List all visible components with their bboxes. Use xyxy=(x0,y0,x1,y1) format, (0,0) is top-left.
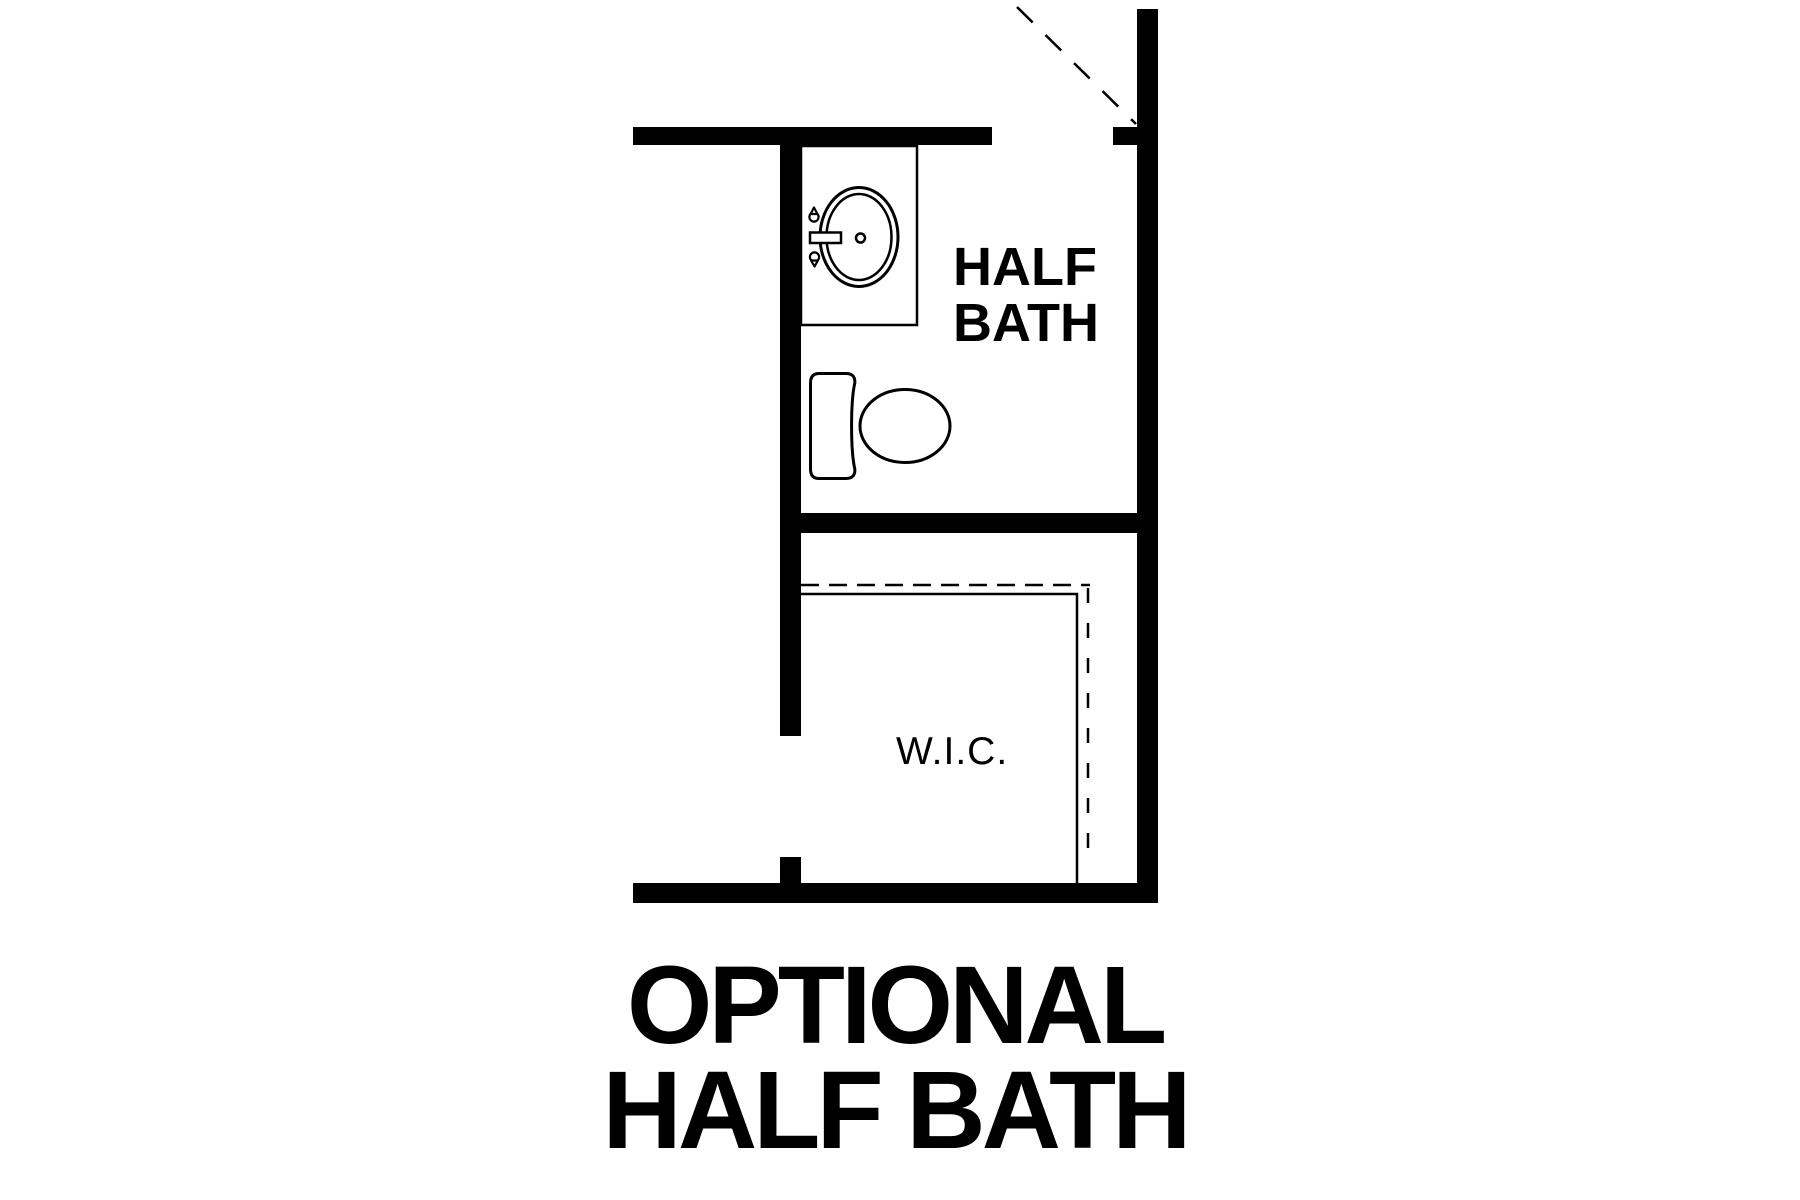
sink-vanity-icon xyxy=(801,146,917,325)
plan-title-line1: OPTIONAL xyxy=(0,953,1790,1058)
half-bath-label-line1: HALF xyxy=(953,239,1099,295)
toilet-bowl xyxy=(860,390,950,463)
bath-closet-divider-wall xyxy=(780,513,1137,533)
toilet-icon xyxy=(811,374,951,479)
plan-title-line2: HALF BATH xyxy=(0,1058,1790,1163)
right-wall xyxy=(1137,9,1158,903)
sink-drain xyxy=(856,234,865,243)
left-wall-door-stub xyxy=(780,857,801,883)
wic-room-label: W.I.C. xyxy=(896,732,1008,772)
sink-faucet xyxy=(810,233,841,244)
toilet-tank xyxy=(811,374,855,479)
top-wall xyxy=(633,127,992,145)
half-bath-room-label: HALF BATH xyxy=(953,239,1099,351)
bottom-wall xyxy=(633,883,1158,903)
door-jamb-wall xyxy=(1113,127,1137,145)
floor-plan-page: HALF BATH W.I.C. OPTIONAL HALF BATH xyxy=(0,0,1800,1200)
half-bath-label-line2: BATH xyxy=(953,295,1099,351)
door-swing-dashed-line xyxy=(1017,7,1136,124)
left-wall xyxy=(780,145,801,736)
plan-title: OPTIONAL HALF BATH xyxy=(0,953,1790,1163)
